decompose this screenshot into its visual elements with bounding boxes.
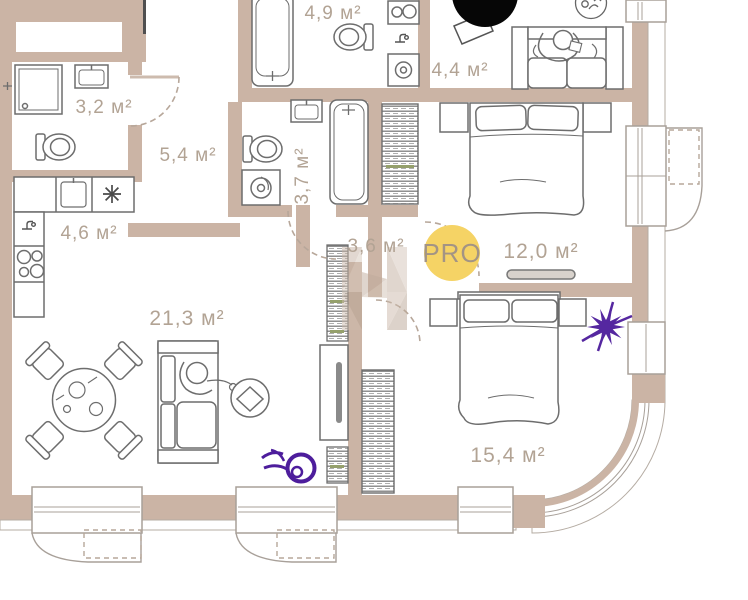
room-label-corridor: 3,6 м² [347, 236, 404, 257]
wardrobe-bedroom2 [362, 370, 394, 493]
washing-machine-1 [388, 54, 419, 86]
wardrobe-bedroom1 [382, 104, 418, 204]
covered-logo [452, 0, 518, 44]
double-sink-icon [388, 1, 419, 24]
bedside-rug [507, 270, 575, 279]
nightstand [583, 103, 611, 132]
side-table [231, 379, 269, 417]
kitchen-sink [61, 182, 86, 207]
sink-icon [75, 65, 108, 88]
nightstand [440, 103, 468, 132]
washing-machine-2 [242, 170, 280, 205]
sink-icon-2 [291, 100, 322, 122]
dining-table [53, 369, 116, 432]
sofa-living [158, 341, 237, 463]
hob-asterisk-icon [103, 185, 121, 203]
bedroom2-furniture [430, 292, 586, 424]
room-label-bathroom-small: 3,2 м² [75, 97, 132, 118]
study-furniture [512, 27, 623, 89]
room-label-bathroom-top: 4,9 м² [304, 3, 361, 24]
dining-set [25, 341, 144, 461]
room-label-bathroom-mid: 3,7 м² [292, 147, 313, 204]
room-label-kitchen: 4,6 м² [60, 223, 117, 244]
hall-niche [16, 22, 122, 52]
toilet-icon-3 [243, 136, 282, 162]
nightstand [559, 299, 586, 326]
flower-decor-purple [262, 450, 315, 482]
floor-plan: PRO 3,2 м² 5,4 м² 4,6 м² 4,9 м² 4,4 м² 3… [0, 0, 748, 600]
bath-tap-icon [395, 35, 408, 43]
pro-badge-label: PRO [422, 238, 481, 268]
plant-icon [576, 0, 607, 19]
floor-plan-canvas: PRO 3,2 м² 5,4 м² 4,6 м² 4,9 м² 4,4 м² 3… [0, 0, 748, 600]
tv-screen [336, 362, 342, 423]
room-label-bedroom-2: 15,4 м² [470, 444, 545, 467]
star-decor-purple [582, 302, 632, 351]
entry-door-jamb [143, 0, 146, 34]
room-label-bedroom-1: 12,0 м² [503, 240, 578, 263]
nightstand [430, 299, 457, 326]
toilet-icon-2 [334, 24, 373, 50]
room-label-living: 21,3 м² [149, 307, 224, 330]
room-label-study: 4,4 м² [431, 60, 488, 81]
room-label-hallway: 5,4 м² [159, 145, 216, 166]
toilet-icon-1 [36, 134, 75, 160]
pro-badge: PRO [422, 225, 481, 281]
